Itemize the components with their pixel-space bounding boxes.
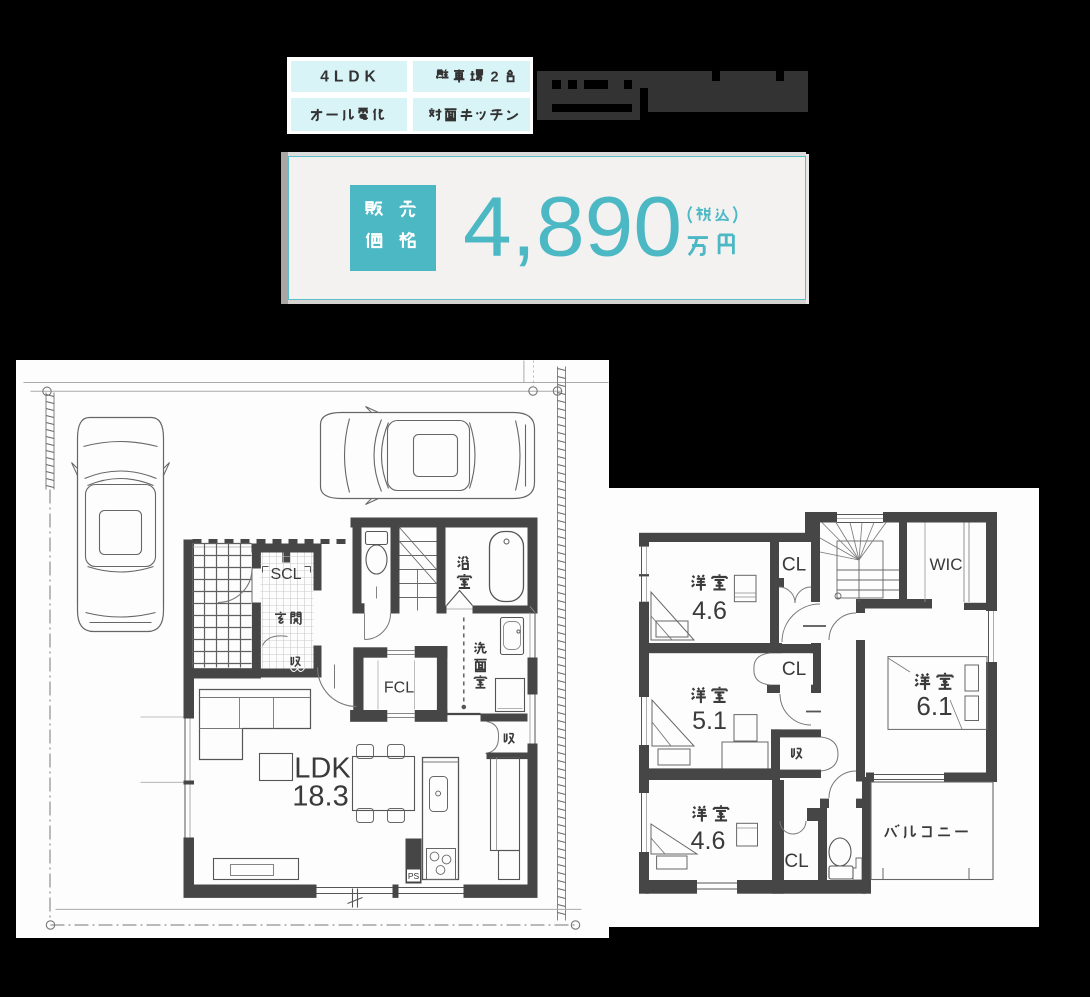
svg-text:4.6: 4.6 (691, 827, 726, 855)
svg-text:2: 2 (490, 69, 498, 85)
svg-text:SCL: SCL (270, 566, 301, 583)
svg-text:4LDK: 4LDK (320, 69, 380, 86)
svg-text:PS: PS (407, 871, 419, 881)
svg-text:CL: CL (782, 659, 806, 680)
svg-text:18.3: 18.3 (292, 780, 348, 812)
svg-text:4.6: 4.6 (692, 597, 727, 625)
svg-text:5.1: 5.1 (692, 707, 727, 735)
svg-text:WIC: WIC (929, 555, 962, 574)
svg-text:FCL: FCL (383, 679, 413, 696)
svg-text:4,890: 4,890 (463, 180, 682, 273)
svg-text:CL: CL (782, 555, 806, 576)
svg-text:6.1: 6.1 (916, 691, 952, 721)
svg-text:CL: CL (784, 851, 808, 872)
